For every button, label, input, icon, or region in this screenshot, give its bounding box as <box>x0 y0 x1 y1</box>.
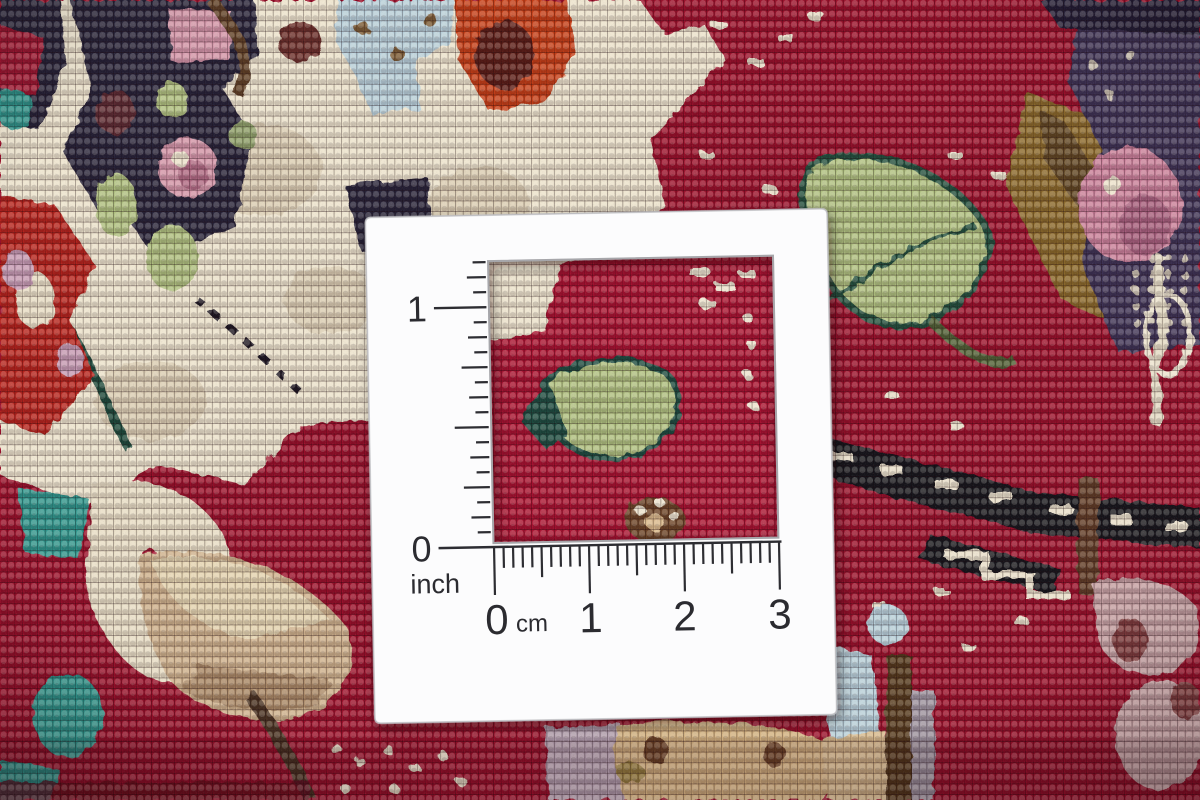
vignette-overlay <box>0 0 1200 800</box>
carpet-photo: 1 0 inch 0 cm 1 2 3 <box>0 0 1200 800</box>
carpet-photo-svg: 1 0 inch 0 cm 1 2 3 <box>0 0 1200 800</box>
